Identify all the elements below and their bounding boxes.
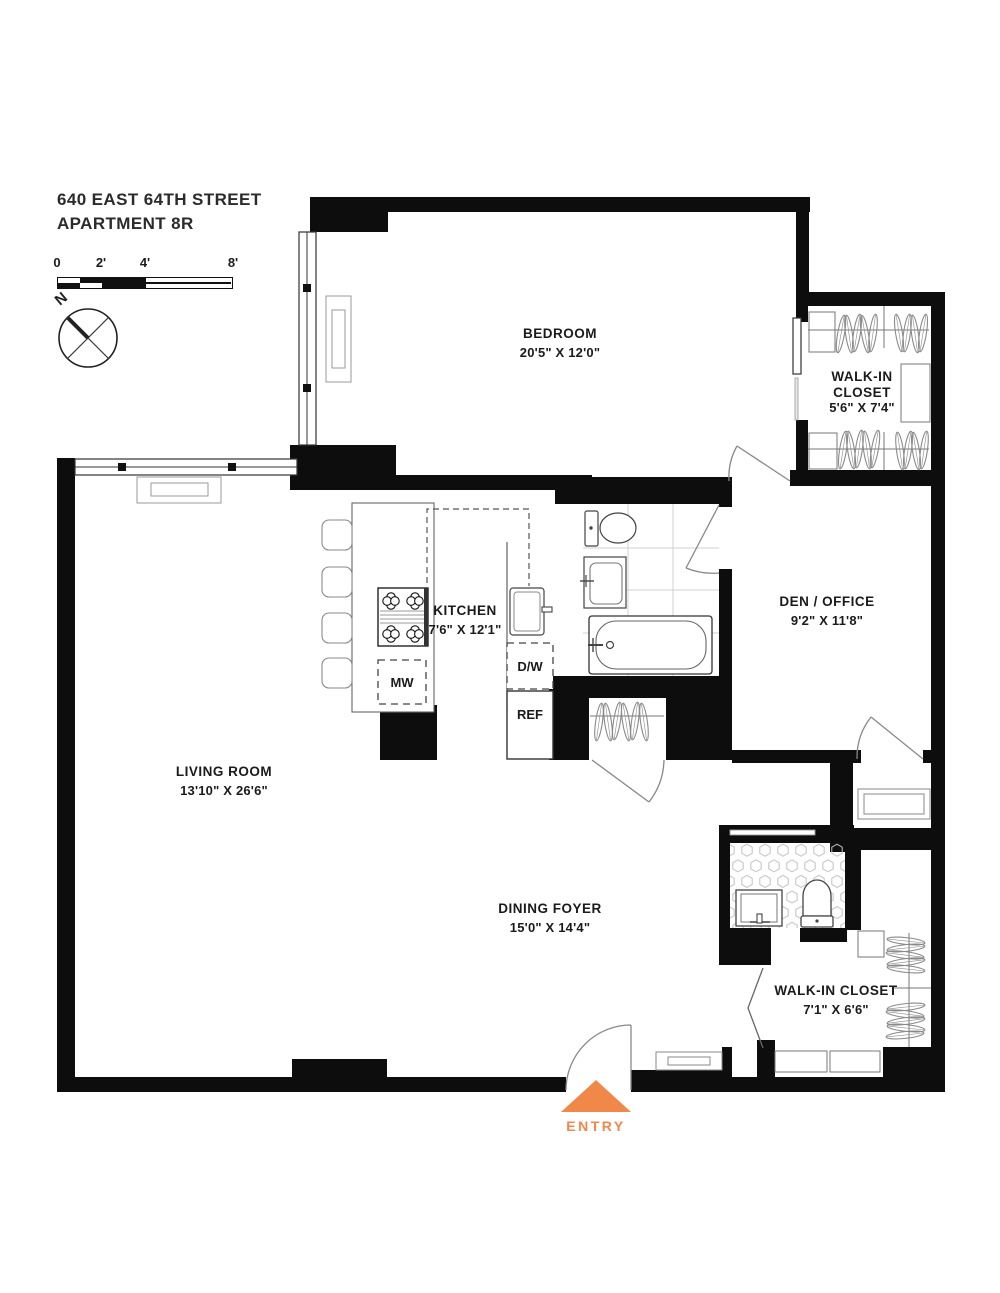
refrigerator-box: [507, 691, 553, 759]
bedroom-closet-pocket-door: [793, 318, 801, 420]
room-label-bedroom: BEDROOM 20'5" X 12'0": [460, 324, 660, 362]
scale-tick-4ft: 4': [130, 255, 160, 270]
room-dims: 15'0" X 14'4": [450, 918, 650, 937]
room-label-walk-in-closet-upper: WALK-IN CLOSET 5'6" X 7'4": [816, 369, 908, 416]
bedroom-radiator: [326, 296, 351, 382]
bar-stools: [322, 520, 352, 688]
room-dims: 7'1" X 6'6": [746, 1000, 926, 1019]
powder-shelf-line: [730, 830, 815, 835]
bedroom-window: [299, 232, 316, 445]
room-label-living-room: LIVING ROOM 13'10" X 26'6": [124, 762, 324, 800]
unit-title: APARTMENT 8R: [57, 212, 262, 236]
room-name: DEN / OFFICE: [747, 592, 907, 611]
powder-sink-icon: [736, 890, 782, 926]
entry-arrow-icon: [561, 1080, 631, 1112]
room-dims: 5'6" X 7'4": [816, 400, 908, 416]
microwave-label: MW: [380, 675, 424, 690]
room-label-dining-foyer: DINING FOYER 15'0" X 14'4": [450, 899, 650, 937]
room-dims: 7'6" X 12'1": [405, 620, 525, 639]
room-label-kitchen: KITCHEN 7'6" X 12'1": [405, 601, 525, 639]
room-name: LIVING ROOM: [124, 762, 324, 781]
room-name: WALK-IN CLOSET: [746, 981, 926, 1000]
room-name: BEDROOM: [460, 324, 660, 343]
entry-bench: [656, 1052, 722, 1070]
living-room-radiator: [137, 477, 221, 503]
room-dims: 9'2" X 11'8": [747, 611, 907, 630]
room-name: DINING FOYER: [450, 899, 650, 918]
powder-toilet-icon: [801, 880, 833, 927]
dishwasher-label: D/W: [506, 659, 554, 674]
floor-plan-page: N 640 EAST 64TH STREET APARTMENT 8R 0 2'…: [0, 0, 1000, 1293]
toilet-icon: [585, 511, 636, 546]
room-dims: 13'10" X 26'6": [124, 781, 324, 800]
scale-bar: [57, 277, 233, 289]
room-label-den-office: DEN / OFFICE 9'2" X 11'8": [747, 592, 907, 630]
entry-label: ENTRY: [546, 1118, 646, 1134]
scale-tick-2ft: 2': [86, 255, 116, 270]
compass-north-label: N: [52, 289, 71, 309]
room-name: KITCHEN: [405, 601, 525, 620]
room-name: WALK-IN CLOSET: [816, 369, 908, 400]
room-label-walk-in-closet-lower: WALK-IN CLOSET 7'1" X 6'6": [746, 981, 926, 1019]
address-title: 640 EAST 64TH STREET: [57, 188, 262, 212]
bathroom-sink-icon: [580, 557, 626, 608]
scale-tick-0: 0: [42, 255, 72, 270]
hall-closet-door-arc: [592, 760, 664, 802]
room-dims: 20'5" X 12'0": [460, 343, 660, 362]
hall-closet: [590, 702, 664, 742]
bedroom-door-arc: [729, 446, 790, 481]
den-door-arc: [857, 717, 923, 759]
entry-door-arc: [566, 1025, 631, 1090]
refrigerator-label: REF: [506, 707, 554, 722]
bathtub-icon: [588, 616, 712, 674]
bathroom-door-arc: [686, 505, 719, 573]
living-room-window: [75, 459, 297, 475]
scale-tick-8ft: 8': [218, 255, 248, 270]
compass-icon: N: [52, 289, 117, 367]
vestibule-shelf: [858, 789, 930, 819]
plan-header: 640 EAST 64TH STREET APARTMENT 8R: [57, 188, 262, 236]
